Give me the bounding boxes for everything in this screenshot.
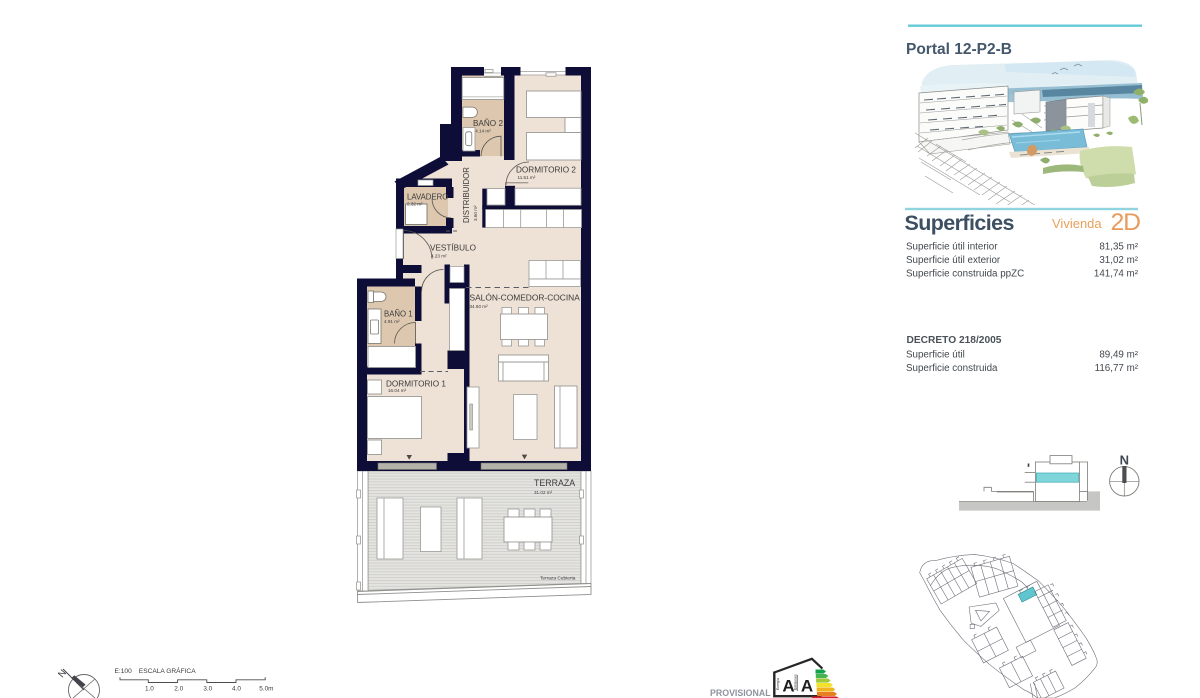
svg-text:5.0m: 5.0m [259,686,273,693]
svg-text:4.91 m²: 4.91 m² [384,319,400,324]
svg-text:1.0: 1.0 [145,686,154,693]
svg-text:Energía: Energía [776,678,780,690]
svg-text:DORMITORIO 2: DORMITORIO 2 [516,166,576,175]
svg-text:Portal 12-P2-B: Portal 12-P2-B [906,41,1012,58]
svg-text:Superficie construida ppZC: Superficie construida ppZC [906,269,1024,280]
svg-text:LAVADERO: LAVADERO [407,193,448,202]
svg-text:3.0: 3.0 [203,686,212,693]
svg-text:2.0: 2.0 [174,686,183,693]
svg-text:ESCALA GRÁFICA: ESCALA GRÁFICA [139,666,196,675]
svg-text:BAÑO 1: BAÑO 1 [384,310,413,319]
svg-text:Terraza Cubierta: Terraza Cubierta [540,576,576,582]
svg-text:11.51 m²: 11.51 m² [518,175,536,180]
svg-text:2D: 2D [1111,209,1141,236]
svg-text:Superficie útil interior: Superficie útil interior [906,242,998,253]
svg-text:116,77 m²: 116,77 m² [1095,363,1139,374]
svg-text:PROVISIONAL: PROVISIONAL [710,688,771,698]
svg-text:141,74 m²: 141,74 m² [1094,269,1139,280]
svg-text:BAÑO 2: BAÑO 2 [473,118,503,128]
svg-text:89,49 m²: 89,49 m² [1099,350,1138,361]
svg-text:Superficie útil: Superficie útil [906,350,965,361]
svg-text:Superficies: Superficies [905,211,1015,235]
svg-text:Superficie construida: Superficie construida [906,363,998,374]
svg-text:Vivienda: Vivienda [1052,216,1102,231]
svg-text:4.0: 4.0 [232,686,241,693]
svg-text:2.32 m²: 2.32 m² [407,202,423,207]
svg-text:31.02 m²: 31.02 m² [534,490,553,495]
svg-text:VESTÍBULO: VESTÍBULO [430,243,476,253]
svg-text:4.14 m²: 4.14 m² [475,129,491,134]
svg-text:31,02 m²: 31,02 m² [1099,255,1138,266]
svg-text:Superficie útil exterior: Superficie útil exterior [906,255,1001,266]
svg-text:A: A [801,677,813,696]
svg-text:Emisiones: Emisiones [794,674,798,690]
svg-text:N: N [1120,453,1129,468]
svg-text:3.60 m²: 3.60 m² [473,205,478,221]
svg-text:SALÓN-COMEDOR-COCINA: SALÓN-COMEDOR-COCINA [470,293,581,303]
svg-text:34.60 m²: 34.60 m² [470,304,489,309]
svg-text:4.23 m²: 4.23 m² [431,254,447,259]
svg-text:E:100: E:100 [115,668,133,675]
svg-text:16.04 m²: 16.04 m² [388,388,407,393]
svg-text:81,35 m²: 81,35 m² [1099,242,1138,253]
svg-text:DISTRIBUIDOR: DISTRIBUIDOR [462,167,471,223]
svg-text:DECRETO 218/2005: DECRETO 218/2005 [907,335,1002,346]
svg-text:TERRAZA: TERRAZA [534,478,575,488]
